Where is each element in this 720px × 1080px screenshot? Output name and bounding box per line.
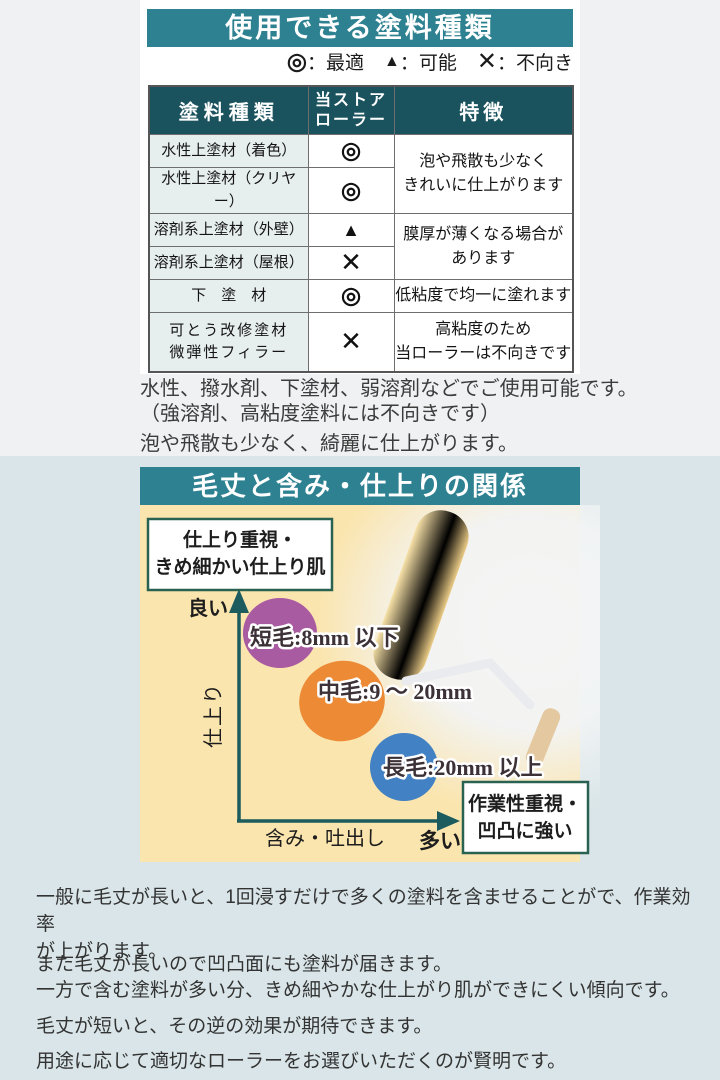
finish-priority-line2: きめ細かい仕上り肌 (154, 555, 325, 578)
legend-label: ：可能 (400, 48, 457, 75)
paint-type-cell: 水性上塗材（着色） (149, 135, 308, 168)
bristle-chart-svg: 短毛:8mm 以下 中毛:9 ～ 20mm 長毛:20mm 以上 良い 仕上り … (140, 505, 600, 862)
short-bristle-label: 短毛:8mm 以下 (250, 625, 398, 650)
table-row: 水性上塗材（着色） ◎ 泡や飛散も少なく きれいに仕上がります (149, 135, 573, 168)
legend-label: ：最適 (307, 48, 364, 75)
unsuitable-mark-icon: ✕ (477, 50, 497, 74)
paint-type-cell: 下 塗 材 (149, 280, 308, 313)
roller-header-line1: 当ストア (309, 91, 394, 110)
unsuitable-mark-icon: ✕ (340, 327, 362, 356)
feature-cell: 高粘度のため 当ローラーは不向きです (394, 313, 573, 373)
column-header-paint-type: 塗料種類 (149, 86, 308, 135)
legend-label: ：不向き (497, 48, 573, 75)
explanation-paragraph-5: 用途に応じて適切なローラーをお選びいただくのが賢明です。 (36, 1048, 706, 1075)
explanation-paragraph-2: また毛丈が長いので凹凸面にも塗料が届きます。 (36, 951, 706, 978)
usage-note-line1: 水性、撥水剤、下塗材、弱溶剤などでご使用可能です。 (140, 377, 638, 402)
paint-type-cell: 溶剤系上塗材（外壁） (149, 214, 308, 247)
legend-item-best: ◎：最適 (287, 48, 364, 75)
paint-compatibility-table: 塗料種類 当ストア ローラー 特徴 水性上塗材（着色） ◎ 泡や飛散も少なく き… (148, 85, 574, 373)
best-mark-icon: ◎ (341, 138, 361, 163)
explanation-paragraph-3: 一方で含む塗料が多い分、きめ細やかな仕上がり肌ができにくい傾向です。 (36, 977, 706, 1004)
medium-bristle-label: 中毛:9 ～ 20mm (318, 679, 472, 704)
feature-cell: 泡や飛散も少なく きれいに仕上がります (394, 135, 573, 214)
roller-header-line2: ローラー (309, 111, 394, 130)
usage-note-line3: 泡や飛散も少なく、綺麗に仕上がります。 (140, 432, 518, 457)
explanation-paragraph-4: 毛丈が短いと、その逆の効果が期待できます。 (36, 1013, 706, 1040)
legend-item-possible: ▲：可能 (384, 48, 457, 75)
table-row: 溶剤系上塗材（外壁） ▲ 膜厚が薄くなる場合が あります (149, 214, 573, 247)
bristle-chart: 短毛:8mm 以下 中毛:9 ～ 20mm 長毛:20mm 以上 良い 仕上り … (140, 505, 600, 862)
best-mark-icon: ◎ (287, 50, 307, 73)
long-bristle-label: 長毛:20mm 以上 (383, 755, 542, 780)
legend-item-unsuitable: ✕：不向き (477, 48, 573, 75)
usage-note-line2: （強溶剤、高粘度塗料には不向きです） (140, 402, 500, 427)
unsuitable-mark-icon: ✕ (340, 248, 362, 277)
possible-mark-icon: ▲ (384, 54, 400, 70)
y-axis-title: 仕上り (202, 682, 225, 748)
table-row: 下 塗 材 ◎ 低粘度で均一に塗れます (149, 280, 573, 313)
paint-type-cell: 溶剤系上塗材（屋根） (149, 247, 308, 280)
x-axis-title: 含み・吐出し (265, 827, 385, 850)
feature-cell: 低粘度で均一に塗れます (394, 280, 573, 313)
workability-priority-box: 作業性重視・ 凹凸に強い (463, 782, 588, 853)
x-axis-many-label: 多い (419, 829, 461, 853)
paint-type-cell: 可とう改修塗材 微弾性フィラー (149, 313, 308, 373)
feature-cell: 膜厚が薄くなる場合が あります (394, 214, 573, 280)
finish-priority-box: 仕上り重視・ きめ細かい仕上り肌 (148, 519, 332, 590)
y-axis-good-label: 良い (188, 596, 228, 620)
product-infographic: 使用できる塗料種類 ◎：最適 ▲：可能 ✕：不向き 塗料種類 当ストア ローラー… (0, 0, 720, 1080)
section2-title: 毛丈と含み・仕上りの関係 (140, 467, 580, 505)
table-row: 可とう改修塗材 微弾性フィラー ✕ 高粘度のため 当ローラーは不向きです (149, 313, 573, 373)
best-mark-icon: ◎ (341, 283, 361, 308)
column-header-roller: 当ストア ローラー (308, 86, 394, 135)
column-header-feature: 特徴 (394, 86, 573, 135)
mark-legend: ◎：最適 ▲：可能 ✕：不向き (287, 48, 573, 75)
workability-priority-line2: 凹凸に強い (477, 820, 572, 842)
workability-priority-line1: 作業性重視・ (468, 792, 582, 815)
possible-mark-icon: ▲ (342, 220, 360, 240)
paint-type-cell: 水性上塗材（クリヤー） (149, 168, 308, 214)
table-header-row: 塗料種類 当ストア ローラー 特徴 (149, 86, 573, 135)
best-mark-icon: ◎ (341, 178, 361, 203)
section1-title: 使用できる塗料種類 (147, 9, 573, 47)
finish-priority-line1: 仕上り重視・ (182, 528, 297, 551)
